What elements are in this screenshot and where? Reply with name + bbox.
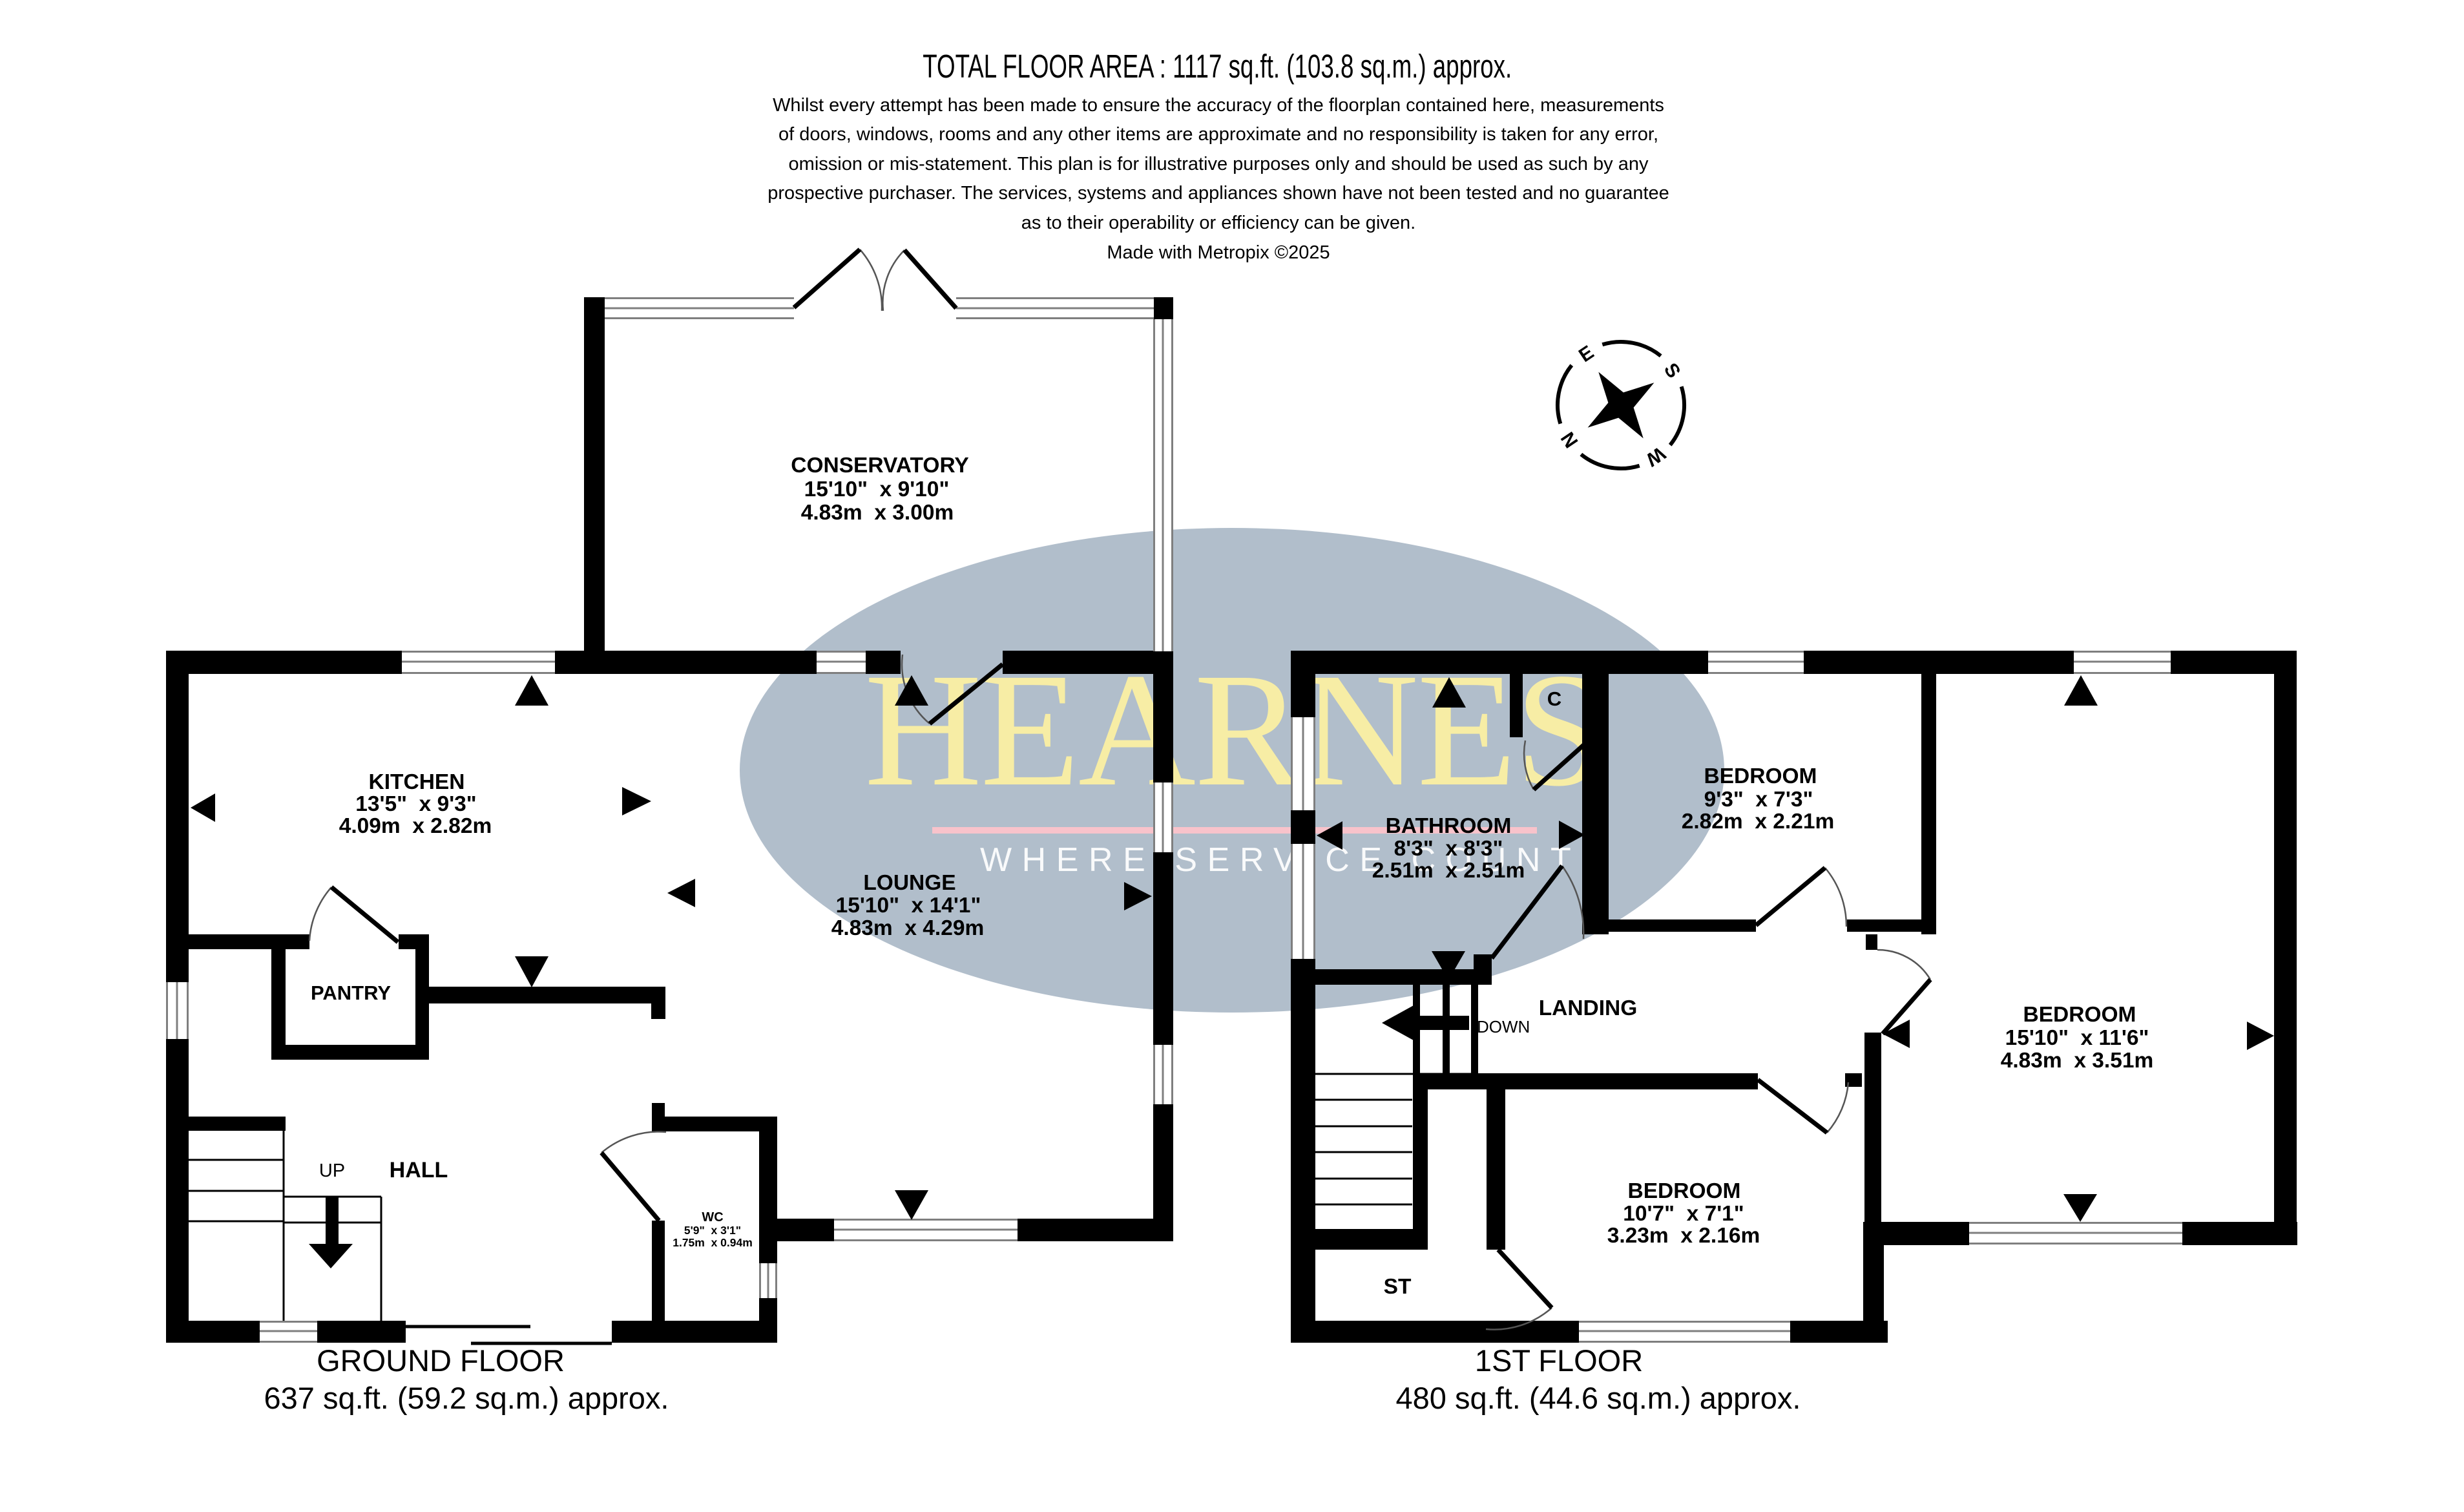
svg-text:omission or mis-statement. Thi: omission or mis-statement. This plan is … [789,154,1649,174]
svg-text:DOWN: DOWN [1477,1017,1530,1036]
svg-text:TOTAL FLOOR AREA : 1117 sq.ft.: TOTAL FLOOR AREA : 1117 sq.ft. (103.8 sq… [923,48,1512,85]
svg-text:480 sq.ft. (44.6 sq.m.) approx: 480 sq.ft. (44.6 sq.m.) approx. [1396,1381,1801,1415]
svg-text:UP: UP [319,1160,345,1181]
svg-text:as to their operability or eff: as to their operability or efficiency ca… [1021,213,1415,233]
svg-text:KITCHEN: KITCHEN [369,770,465,794]
svg-text:LANDING: LANDING [1539,996,1638,1020]
svg-text:15'10" x 11'6": 15'10" x 11'6" [2005,1026,2149,1050]
svg-text:5'9" x 3'1": 5'9" x 3'1" [684,1224,741,1237]
svg-text:HALL: HALL [390,1158,448,1182]
svg-text:BEDROOM: BEDROOM [2023,1003,2136,1027]
svg-text:10'7" x 7'1": 10'7" x 7'1" [1623,1202,1744,1226]
svg-text:2.82m x 2.21m: 2.82m x 2.21m [1682,810,1835,834]
svg-text:8'3" x 8'3": 8'3" x 8'3" [1394,837,1503,861]
svg-text:LOUNGE: LOUNGE [863,871,955,895]
svg-text:2.51m x 2.51m: 2.51m x 2.51m [1372,859,1525,883]
svg-text:13'5" x 9'3": 13'5" x 9'3" [355,792,476,816]
svg-text:4.83m x 3.00m: 4.83m x 3.00m [801,501,954,525]
svg-text:CONSERVATORY: CONSERVATORY [791,454,969,478]
svg-text:C: C [1547,688,1561,710]
svg-text:4.09m x 2.82m: 4.09m x 2.82m [339,814,492,838]
svg-text:Made with Metropix ©2025: Made with Metropix ©2025 [1107,242,1330,263]
svg-text:15'10" x 9'10": 15'10" x 9'10" [804,478,950,501]
svg-text:GROUND FLOOR: GROUND FLOOR [317,1343,565,1378]
svg-text:BATHROOM: BATHROOM [1386,814,1512,838]
svg-text:15'10" x 14'1": 15'10" x 14'1" [836,894,981,918]
svg-text:4.83m x 4.29m: 4.83m x 4.29m [831,916,985,940]
svg-text:BEDROOM: BEDROOM [1628,1179,1741,1203]
svg-text:ST: ST [1384,1275,1412,1299]
svg-text:4.83m x 3.51m: 4.83m x 3.51m [2001,1049,2154,1073]
svg-text:BEDROOM: BEDROOM [1704,764,1817,788]
svg-text:1ST FLOOR: 1ST FLOOR [1475,1343,1643,1378]
svg-text:prospective purchaser. The ser: prospective purchaser. The services, sys… [767,183,1669,204]
svg-text:3.23m x 2.16m: 3.23m x 2.16m [1607,1224,1760,1248]
svg-text:of doors, windows, rooms and a: of doors, windows, rooms and any other i… [778,124,1658,145]
svg-text:Whilst every attempt has been: Whilst every attempt has been made to en… [773,95,1664,116]
svg-text:PANTRY: PANTRY [311,982,391,1004]
svg-text:1.75m x 0.94m: 1.75m x 0.94m [673,1236,753,1249]
svg-text:637 sq.ft. (59.2 sq.m.) approx: 637 sq.ft. (59.2 sq.m.) approx. [264,1381,669,1415]
svg-text:9'3" x 7'3": 9'3" x 7'3" [1704,788,1813,812]
svg-text:WC: WC [702,1210,723,1224]
